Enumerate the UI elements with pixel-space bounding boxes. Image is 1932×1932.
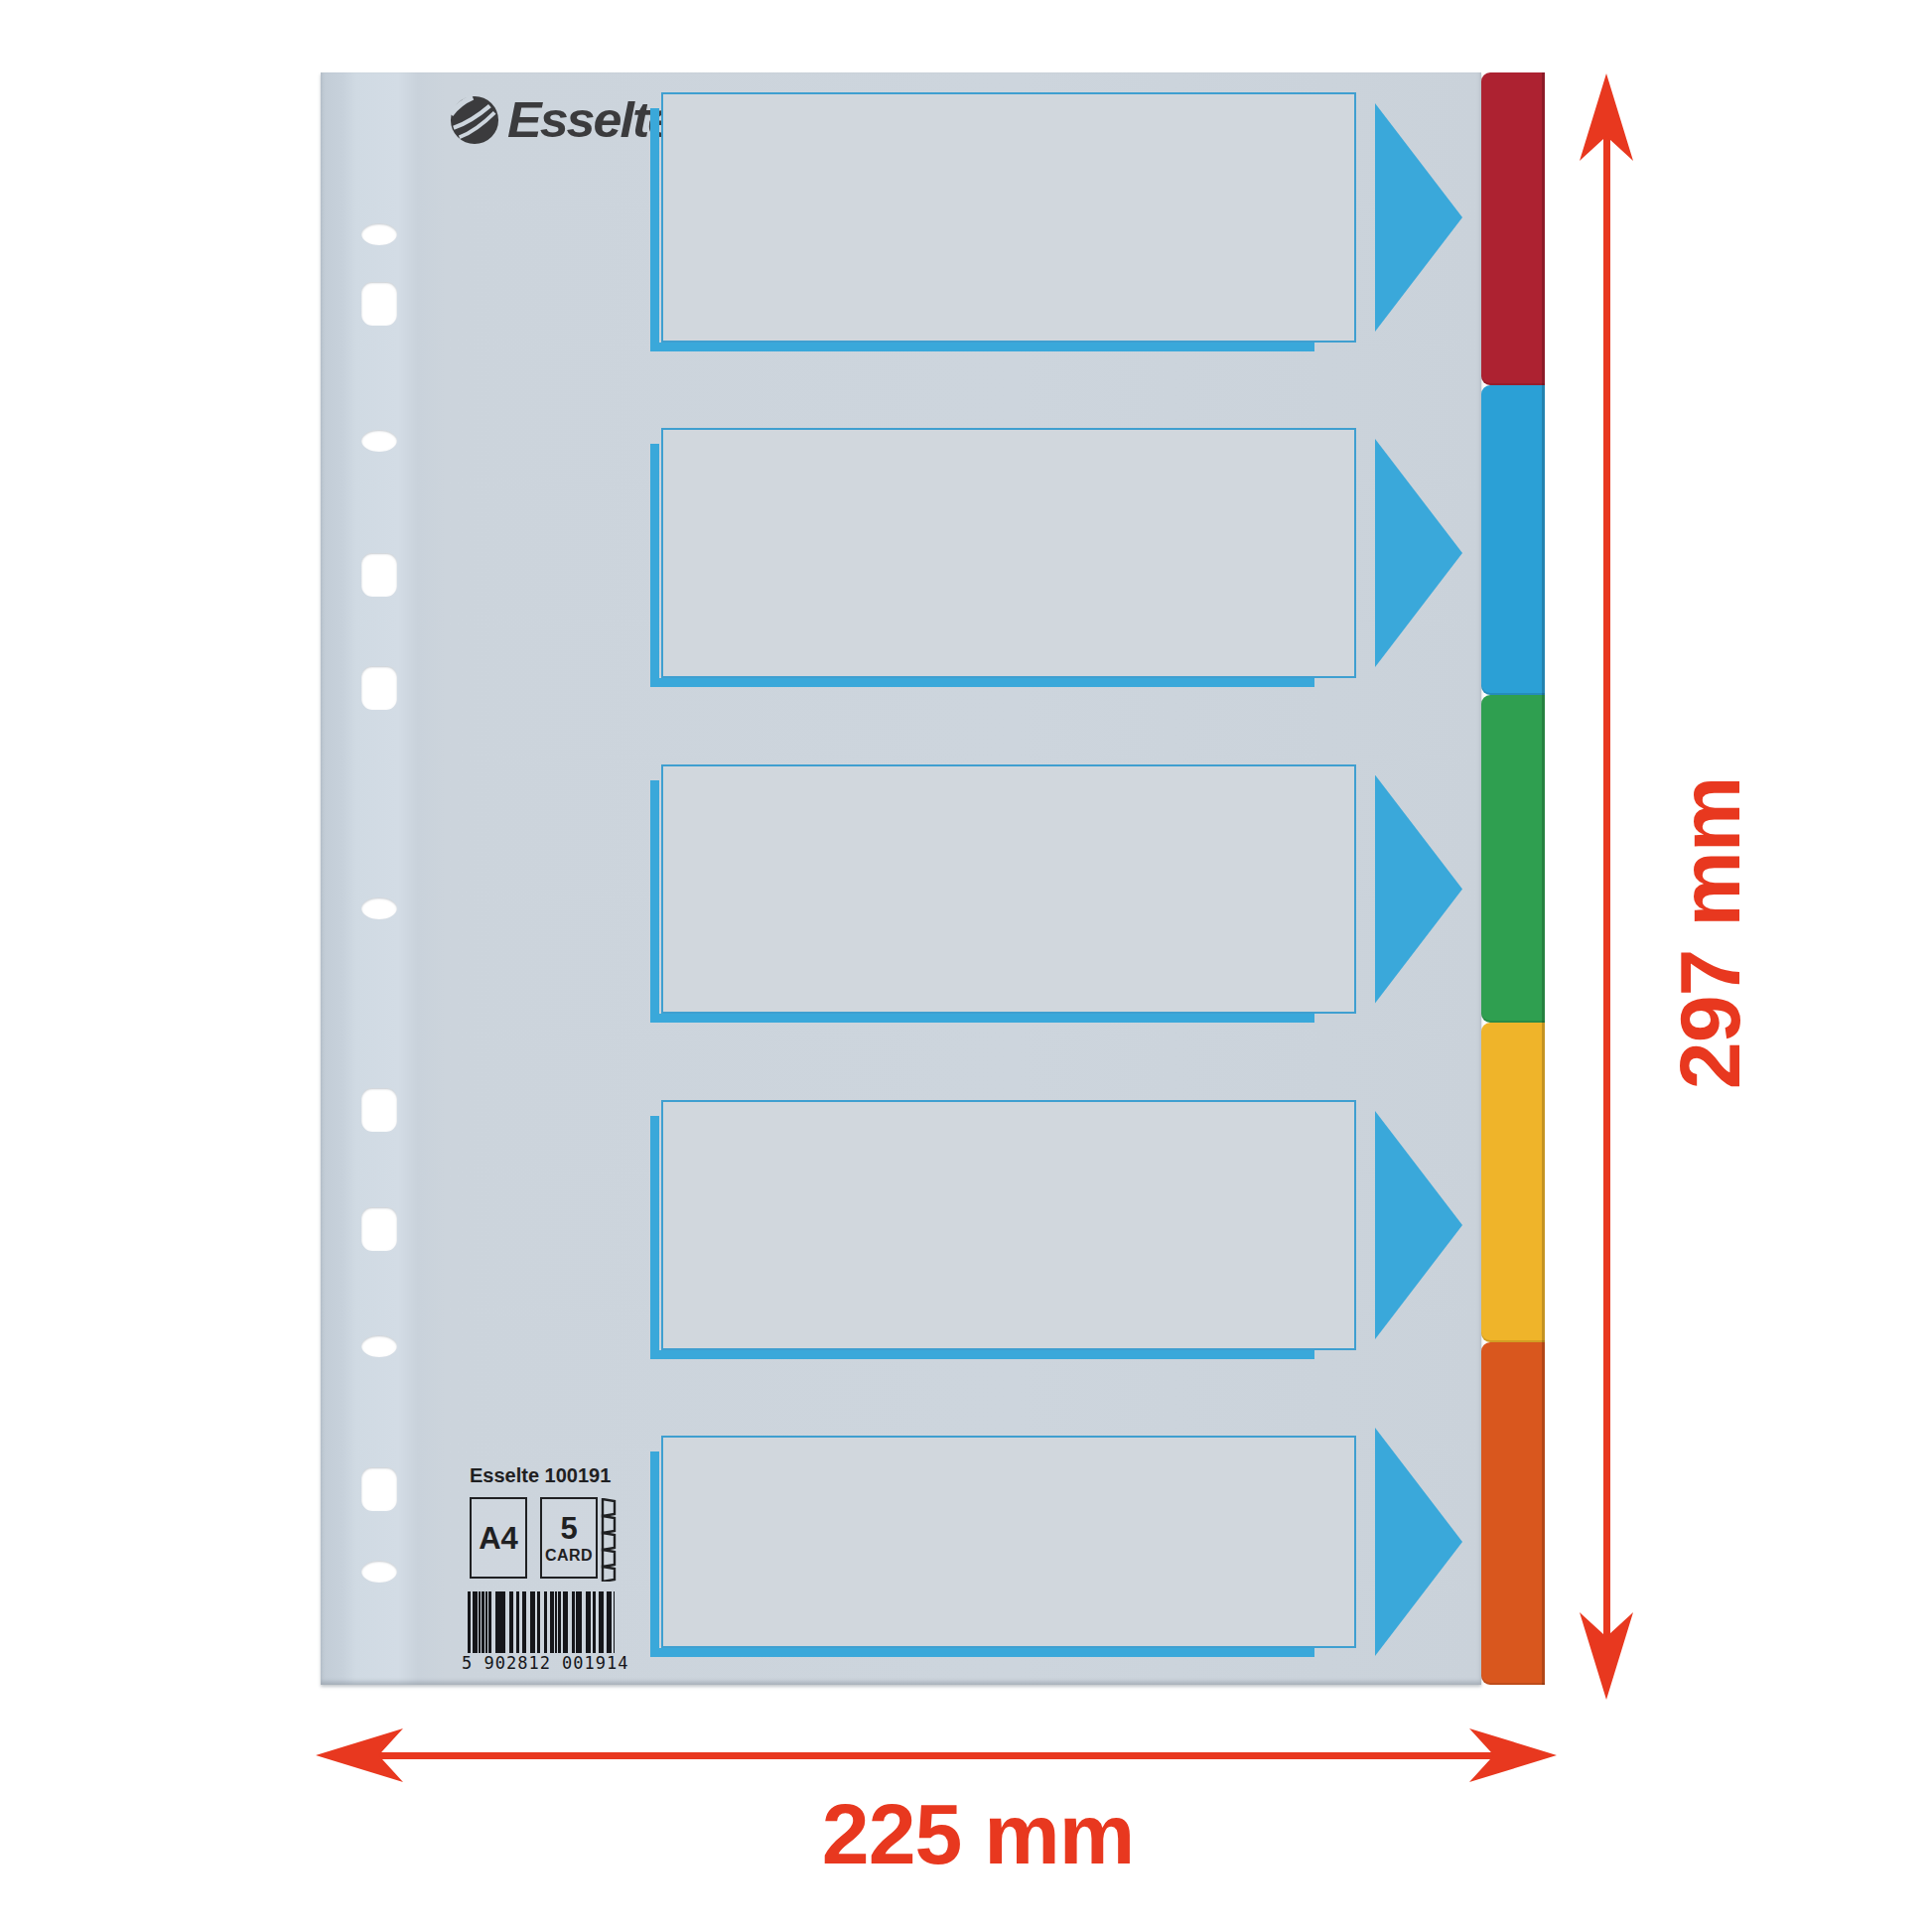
label-box-2 [661, 428, 1356, 678]
punch-hole [361, 1467, 397, 1511]
height-dimension-line [1603, 127, 1610, 1648]
label-box-field [661, 1436, 1356, 1648]
format-badge-text: A4 [479, 1523, 518, 1554]
product-image: Esselte [0, 0, 1932, 1932]
label-box-1 [661, 92, 1356, 343]
label-box-edge [650, 780, 659, 1023]
tab-orange [1481, 1342, 1545, 1685]
punch-hole [361, 430, 397, 452]
punch-hole [361, 282, 397, 326]
product-sku: Esselte 100191 [470, 1464, 628, 1487]
label-box-edge [650, 108, 659, 351]
tab-blue [1481, 385, 1545, 695]
esselte-logo: Esselte [450, 94, 674, 146]
tab-yellow [1481, 1023, 1545, 1342]
esselte-logo-text: Esselte [507, 95, 674, 145]
barcode-digits: 5 902812 001914 [462, 1653, 621, 1673]
format-badge: A4 [470, 1497, 527, 1579]
height-dimension-label: 297 mm [1661, 777, 1759, 1089]
label-box-edge [650, 444, 659, 687]
tab-stack-icon [600, 1498, 618, 1582]
label-box-4 [661, 1100, 1356, 1350]
punch-hole [361, 223, 397, 245]
label-box-edge [650, 1014, 1314, 1023]
label-box-field [661, 92, 1356, 343]
punch-hole [361, 1207, 397, 1251]
label-box-field [661, 428, 1356, 678]
label-box-field [661, 1100, 1356, 1350]
label-box-3 [661, 764, 1356, 1014]
label-box-edge [650, 1451, 659, 1657]
tab-green [1481, 695, 1545, 1023]
punch-hole [361, 553, 397, 597]
punch-hole [361, 1335, 397, 1357]
barcode-bars [468, 1591, 615, 1653]
label-box-edge [650, 1350, 1314, 1359]
label-box-edge [650, 1116, 659, 1359]
tab-count-number: 5 [560, 1513, 577, 1544]
tab-red [1481, 72, 1545, 385]
product-info-block: Esselte 100191 A4 5 CARD [470, 1464, 628, 1487]
label-box-edge [650, 1648, 1314, 1657]
label-box-edge [650, 678, 1314, 687]
arrow-right-icon [1375, 439, 1462, 667]
punch-hole [361, 1088, 397, 1132]
punch-hole [361, 666, 397, 710]
punch-hole [361, 897, 397, 919]
arrow-right-icon [1375, 1111, 1462, 1339]
divider-sheet: Esselte [321, 72, 1481, 1685]
arrow-right-icon [1375, 775, 1462, 1004]
width-dimension-label: 225 mm [822, 1785, 1134, 1883]
arrow-right-icon [1375, 103, 1462, 332]
barcode: 5 902812 001914 [468, 1591, 615, 1677]
tab-count-badge: 5 CARD [540, 1497, 598, 1579]
tab-count-caption: CARD [545, 1548, 593, 1564]
label-box-edge [650, 343, 1314, 351]
label-box-field [661, 764, 1356, 1014]
label-box-5 [661, 1436, 1356, 1648]
esselte-globe-icon [450, 95, 499, 145]
arrow-right-icon [1375, 1428, 1462, 1656]
punch-hole [361, 1561, 397, 1583]
width-dimension-line [367, 1752, 1505, 1759]
